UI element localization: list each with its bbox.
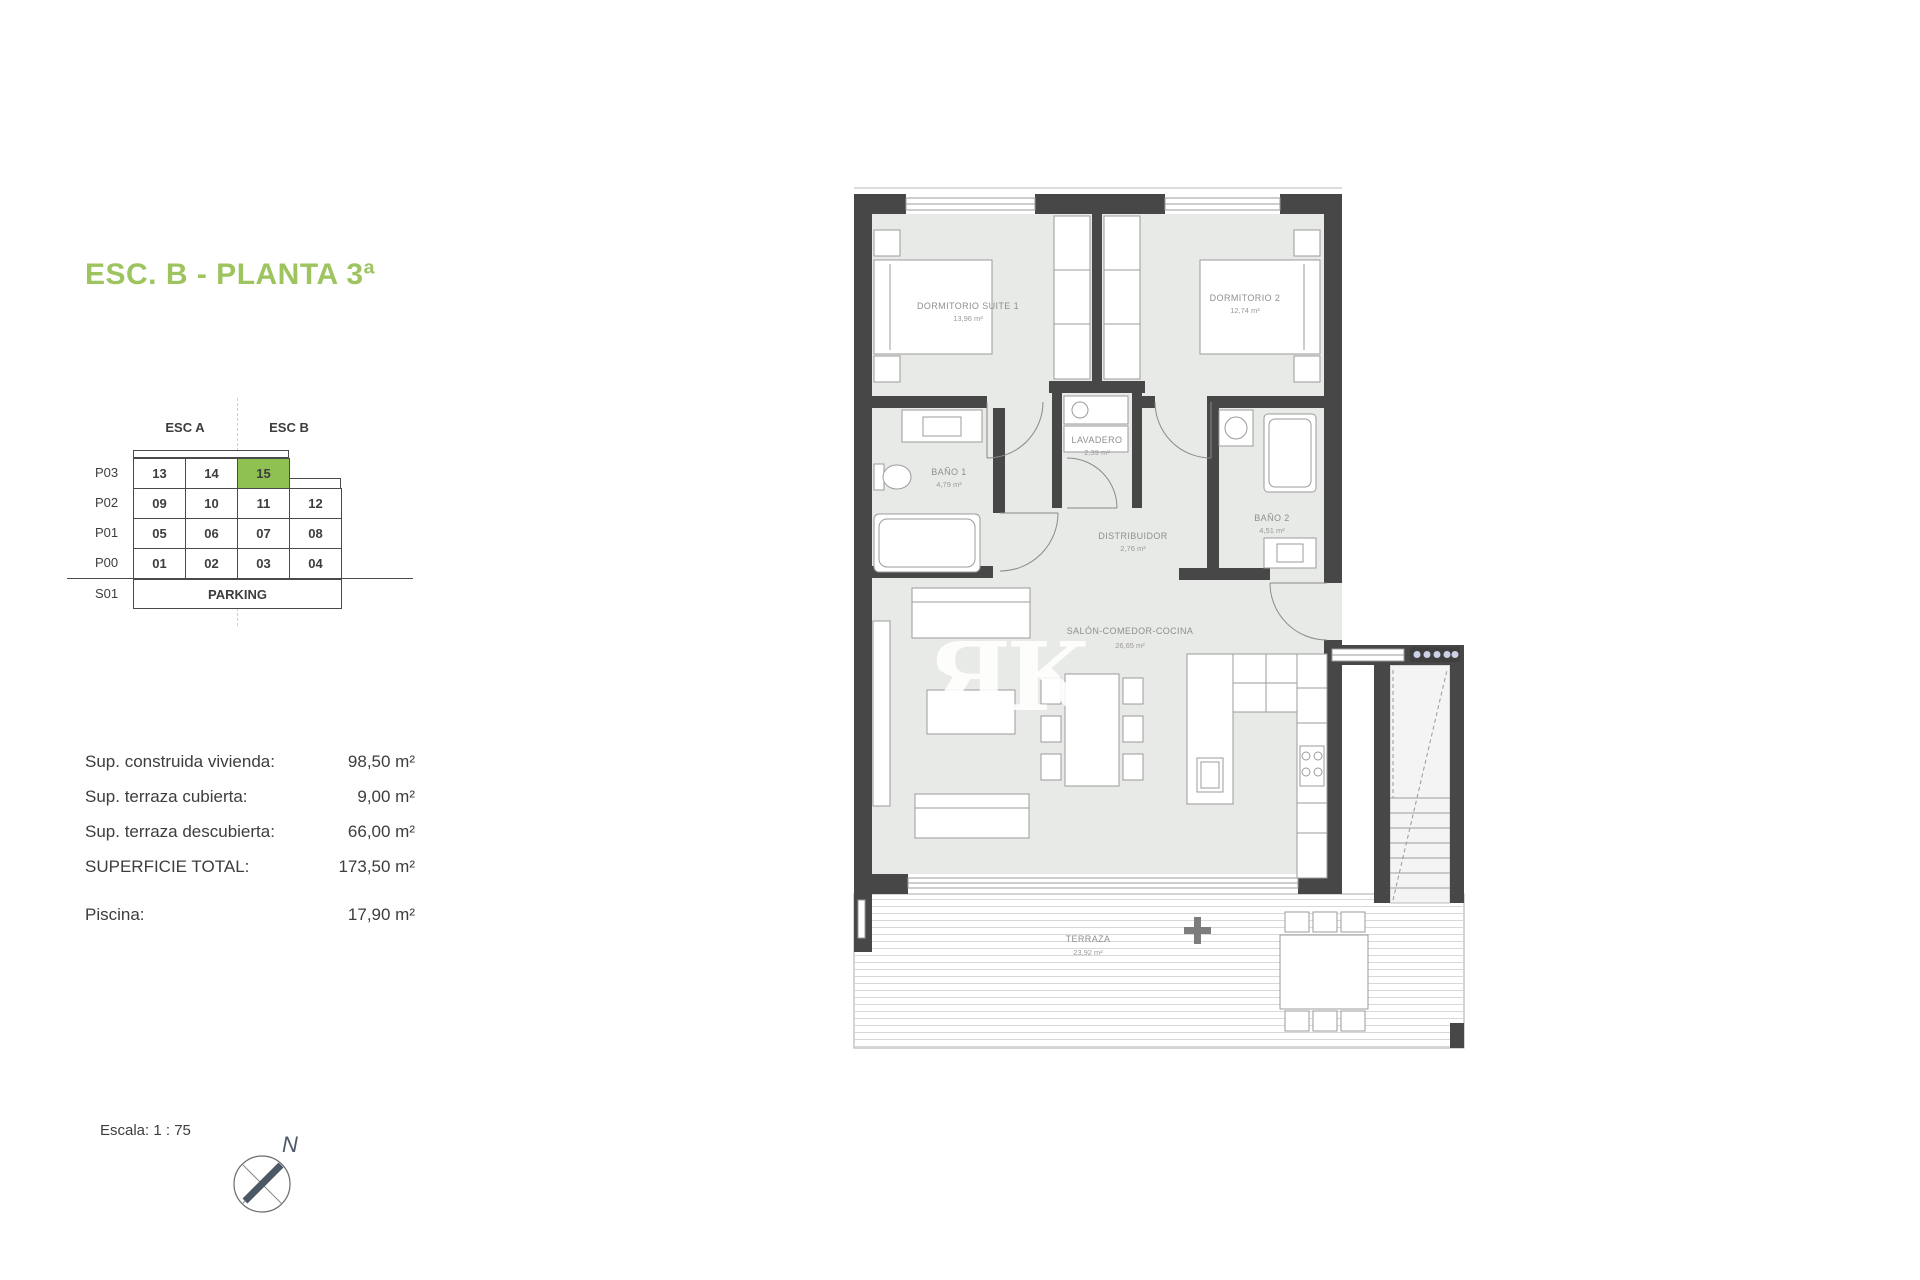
area-row-piscina: Piscina: 17,90 m² [85, 905, 415, 925]
keyplan-row-label: P02 [95, 495, 118, 510]
area-row-terraza-descubierta: Sup. terraza descubierta: 66,00 m² [85, 822, 415, 842]
area-label: Sup. terraza cubierta: [85, 787, 248, 807]
keyplan-unit-03: 03 [237, 548, 290, 579]
room-label-dorm2: DORMITORIO 2 [1210, 293, 1281, 303]
compass-icon: N [222, 1128, 317, 1228]
area-value: 9,00 m² [357, 787, 415, 807]
area-row-construida: Sup. construida vivienda: 98,50 m² [85, 752, 415, 772]
keyplan-unit-06: 06 [185, 518, 238, 549]
keyplan-row-label: S01 [95, 586, 118, 601]
keyplan-unit-05: 05 [133, 518, 186, 549]
keyplan-unit-09: 09 [133, 488, 186, 519]
room-area-terraza: 23,92 m² [1073, 948, 1103, 957]
area-label: SUPERFICIE TOTAL: [85, 857, 249, 877]
building-key-plan: ESC A ESC B P03 13 14 15 P02 09 10 11 12… [95, 420, 425, 635]
area-row-total: SUPERFICIE TOTAL: 173,50 m² [85, 857, 415, 877]
page: ESC. B - PLANTA 3ª ESC A ESC B P03 13 14… [0, 0, 1920, 1280]
keyplan-unit-08: 08 [289, 518, 342, 549]
area-row-terraza-cubierta: Sup. terraza cubierta: 9,00 m² [85, 787, 415, 807]
room-area-lavadero: 2,39 m² [1084, 448, 1110, 457]
room-label-bano2: BAÑO 2 [1254, 513, 1289, 523]
keyplan-unit-15-highlighted: 15 [237, 458, 290, 489]
room-label-lavadero: LAVADERO [1072, 435, 1123, 445]
keyplan-unit-13: 13 [133, 458, 186, 489]
area-label: Piscina: [85, 905, 145, 925]
room-area-distribuidor: 2,76 m² [1120, 544, 1146, 553]
keyplan-header-esc-b: ESC B [237, 420, 341, 435]
floor-plan: ЯK DORMITORIO SUITE 1 13,96 m² DORMITORI… [845, 178, 1505, 1075]
keyplan-unit-12: 12 [289, 488, 342, 519]
area-label: Sup. terraza descubierta: [85, 822, 275, 842]
keyplan-unit-07: 07 [237, 518, 290, 549]
keyplan-unit-04: 04 [289, 548, 342, 579]
room-label-distribuidor: DISTRIBUIDOR [1098, 531, 1167, 541]
room-area-bano2: 4,51 m² [1259, 526, 1285, 535]
area-value: 98,50 m² [348, 752, 415, 772]
keyplan-row-label: P00 [95, 555, 118, 570]
room-area-suite1: 13,96 m² [953, 314, 983, 323]
landing-vent [1410, 647, 1460, 662]
keyplan-unit-01: 01 [133, 548, 186, 579]
keyplan-unit-10: 10 [185, 488, 238, 519]
keyplan-unit-02: 02 [185, 548, 238, 579]
keyplan-unit-11: 11 [237, 488, 290, 519]
compass-north-label: N [282, 1132, 298, 1157]
keyplan-row-label: P01 [95, 525, 118, 540]
area-value: 66,00 m² [348, 822, 415, 842]
keyplan-parapet [133, 450, 289, 458]
room-label-salon: SALÓN-COMEDOR-COCINA [1067, 626, 1194, 636]
room-label-bano1: BAÑO 1 [931, 467, 966, 477]
keyplan-header-esc-a: ESC A [133, 420, 237, 435]
area-value: 17,90 m² [348, 905, 415, 925]
room-label-suite1: DORMITORIO SUITE 1 [917, 301, 1019, 311]
terrace-area [854, 894, 1464, 1048]
page-title: ESC. B - PLANTA 3ª [85, 258, 375, 292]
room-area-salon: 26,65 m² [1115, 641, 1145, 650]
room-area-bano1: 4,79 m² [936, 480, 962, 489]
area-value: 173,50 m² [338, 857, 415, 877]
watermark: ЯK [927, 622, 1093, 733]
keyplan-unit-14: 14 [185, 458, 238, 489]
room-label-terraza: TERRAZA [1066, 934, 1111, 944]
surface-areas-list: Sup. construida vivienda: 98,50 m² Sup. … [85, 752, 415, 940]
exterior-stair [1390, 665, 1450, 903]
room-area-dorm2: 12,74 m² [1230, 306, 1260, 315]
area-label: Sup. construida vivienda: [85, 752, 275, 772]
scale-label: Escala: 1 : 75 [100, 1122, 191, 1139]
keyplan-row-label: P03 [95, 465, 118, 480]
keyplan-parking-cell: PARKING [133, 579, 342, 609]
